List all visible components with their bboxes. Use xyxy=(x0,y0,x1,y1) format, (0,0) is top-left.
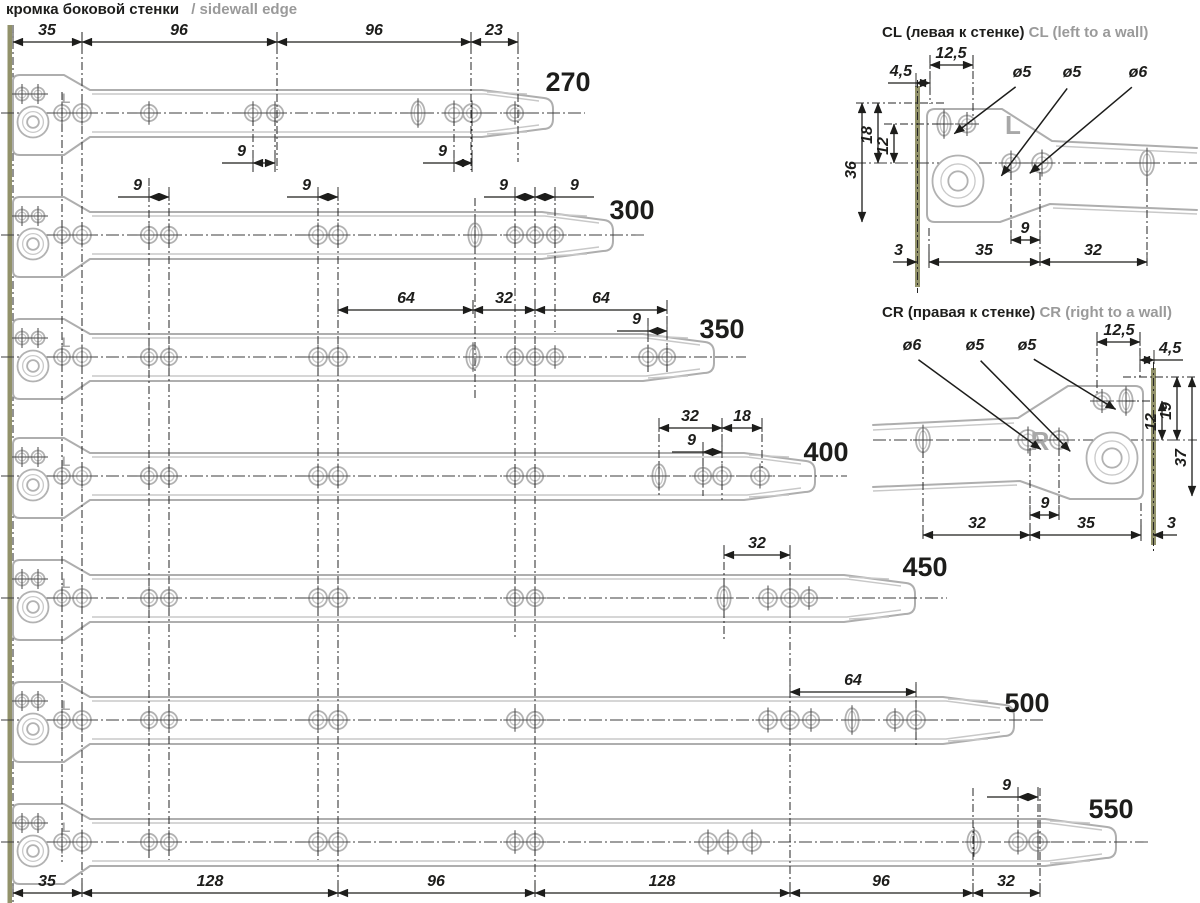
dim-label: 32 xyxy=(495,290,513,307)
screw-hole xyxy=(28,84,48,104)
dimension: 96 xyxy=(277,22,471,46)
slot-hole xyxy=(1137,148,1157,179)
rail-550: L5509 xyxy=(1,777,1148,884)
rail-length-label: 350 xyxy=(699,314,744,344)
dim-label: 9 xyxy=(1002,777,1011,794)
dimension: 32 xyxy=(923,515,1030,539)
dimension: 9 xyxy=(118,177,169,201)
dimension: 4,5 xyxy=(1140,340,1183,364)
dim-label: 35 xyxy=(38,873,57,890)
screw-hole xyxy=(28,328,48,348)
dimension: 9 xyxy=(423,143,472,167)
dimension: 9 xyxy=(1030,495,1059,519)
left-hand-mark: L xyxy=(62,453,71,469)
dim-label: 96 xyxy=(872,873,890,890)
screw-hole xyxy=(28,813,48,833)
dim-label: 96 xyxy=(365,22,383,39)
top-dims: 35969623 xyxy=(13,22,518,46)
dim-label: 23 xyxy=(484,22,503,39)
dimension: 32 xyxy=(659,408,722,432)
hand-mark-cl: L xyxy=(1005,110,1021,140)
dimension: 32 xyxy=(473,290,535,314)
dim-label: 9 xyxy=(632,311,641,328)
dimension: 12,5 xyxy=(1097,322,1140,346)
roller-wheel xyxy=(18,836,49,867)
rail-inner-edge xyxy=(92,247,599,254)
diameter-label: ø5 xyxy=(1063,64,1083,81)
dim-label: 3 xyxy=(1167,515,1176,532)
roller-wheel xyxy=(18,470,49,501)
dimension: 9 xyxy=(1011,220,1040,244)
rail-length-label: 450 xyxy=(902,552,947,582)
bottom-dims: 35128961289632 xyxy=(13,873,1040,897)
detail-cl: CL (левая к стенке) CL (left to a wall)L… xyxy=(843,24,1197,293)
dim-label: 36 xyxy=(843,161,860,179)
rail-350: L3506432649 xyxy=(1,290,746,399)
dim-label: 32 xyxy=(968,515,986,532)
rail-inner-edge xyxy=(92,369,700,376)
rail-body-outline xyxy=(13,319,714,399)
rail-length-label: 400 xyxy=(803,437,848,467)
diameter-label: ø5 xyxy=(966,337,986,354)
dimension: 9 xyxy=(222,143,275,167)
dim-label: 96 xyxy=(427,873,445,890)
dim-label: 32 xyxy=(997,873,1015,890)
dim-label: 9 xyxy=(499,177,508,194)
drawer-slide-drawing: кромка боковой стенки / sidewall edge L2… xyxy=(0,0,1200,903)
dim-label: 96 xyxy=(170,22,188,39)
dim-label: 9 xyxy=(438,143,447,160)
diameter-label: ø6 xyxy=(903,337,922,354)
rail-inner-edge xyxy=(92,338,700,345)
roller-wheel xyxy=(933,156,984,207)
screw-hole xyxy=(503,708,526,731)
dim-label: 18 xyxy=(859,126,876,144)
dimension: 128 xyxy=(535,873,790,897)
dimension: 9 xyxy=(672,432,722,456)
dimension: 18 xyxy=(722,408,762,432)
dimension: 64 xyxy=(790,672,916,696)
dimension: 9 xyxy=(987,777,1038,801)
dim-label: 64 xyxy=(592,290,610,307)
diameter-label: ø5 xyxy=(1018,337,1038,354)
screw-hole xyxy=(28,447,48,467)
roller-wheel xyxy=(1087,433,1138,484)
screw-hole xyxy=(543,345,566,368)
screw-hole xyxy=(797,586,820,609)
dimension: 4,5 xyxy=(888,63,930,87)
rail-length-label: 500 xyxy=(1004,688,1049,718)
dimension: 23 xyxy=(471,22,518,46)
rail-300: 3009999 xyxy=(1,177,655,277)
hand-mark-cr: R xyxy=(1031,426,1050,456)
dimension: 32 xyxy=(1040,242,1147,266)
dim-label: 128 xyxy=(649,873,676,890)
dim-label: 9 xyxy=(1021,220,1030,237)
dim-label: 3 xyxy=(894,242,903,259)
dim-label: 9 xyxy=(1041,495,1050,512)
dimension: 9 xyxy=(535,177,594,201)
dim-label: 32 xyxy=(1084,242,1102,259)
dimension: 32 xyxy=(973,873,1040,897)
rail-inner-edge xyxy=(92,610,901,617)
screw-hole xyxy=(756,586,781,611)
dimension: 9 xyxy=(484,177,535,201)
screw-hole xyxy=(28,206,48,226)
rail-inner-edge xyxy=(92,94,539,101)
dim-label: 35 xyxy=(1077,515,1096,532)
diameter-leader xyxy=(1030,87,1132,173)
roller-wheel xyxy=(18,592,49,623)
rail-inner-edge xyxy=(92,457,801,464)
left-hand-mark: L xyxy=(62,819,71,835)
dim-label: 19 xyxy=(1158,402,1175,420)
screw-hole xyxy=(28,569,48,589)
rail-inner-edge xyxy=(92,701,1000,708)
rail-500: L50064 xyxy=(1,672,1050,762)
rail-450: L45032 xyxy=(1,535,948,640)
dimension: 32 xyxy=(724,535,790,559)
roller-wheel xyxy=(18,351,49,382)
roller-wheel xyxy=(18,107,49,138)
screw-hole xyxy=(883,708,906,731)
technical-drawing-canvas: L270993009999L3506432649L40032189L45032L… xyxy=(0,0,1200,903)
dimension: 35 xyxy=(929,242,1040,266)
screw-hole xyxy=(28,691,48,711)
sidewall-edge-bar xyxy=(8,25,13,903)
detail-title-cl: CL (левая к стенке) CL (left to a wall) xyxy=(882,24,1148,41)
dimension: 19 xyxy=(1158,377,1177,440)
rail-length-label: 270 xyxy=(545,67,590,97)
diameter-leader xyxy=(1034,359,1116,409)
dim-label: 9 xyxy=(687,432,696,449)
rail-inner-edge xyxy=(92,732,1000,739)
dim-label: 18 xyxy=(733,408,751,425)
dimension: 96 xyxy=(790,873,973,897)
rail-length-label: 300 xyxy=(609,195,654,225)
dim-label: 35 xyxy=(38,22,57,39)
screw-hole xyxy=(799,708,822,731)
rail-inner-edge xyxy=(92,854,1102,861)
screw-hole xyxy=(137,101,160,124)
dimension: 96 xyxy=(82,22,277,46)
rail-inner-edge xyxy=(92,579,901,586)
rail-body-outline xyxy=(13,804,1116,884)
slot-hole xyxy=(463,342,482,371)
dim-label: 64 xyxy=(397,290,415,307)
slot-hole xyxy=(964,827,983,856)
dim-label: 12 xyxy=(875,137,892,155)
dim-label: 32 xyxy=(681,408,699,425)
dimension: 36 xyxy=(843,103,862,222)
diameter-label: ø5 xyxy=(1013,64,1033,81)
dim-label: 12,5 xyxy=(935,45,967,62)
dimension: 9 xyxy=(617,311,667,335)
left-hand-mark: L xyxy=(62,575,71,591)
detail-cr: CR (правая к стенке) CR (right to a wall… xyxy=(873,304,1197,551)
screw-hole xyxy=(740,830,765,855)
slot-hole xyxy=(408,98,427,127)
left-hand-mark: L xyxy=(62,697,71,713)
dimension: 37 xyxy=(1173,377,1192,496)
dimension: 128 xyxy=(82,873,338,897)
dim-label: 4,5 xyxy=(889,63,913,80)
left-hand-mark: L xyxy=(62,90,71,106)
roller-wheel xyxy=(18,229,49,260)
rail-inner-edge xyxy=(92,488,801,495)
dim-label: 37 xyxy=(1173,448,1190,467)
rail-inner-edge xyxy=(92,216,599,223)
left-hand-mark: L xyxy=(62,334,71,350)
screw-hole xyxy=(503,101,526,124)
dimension: 96 xyxy=(338,873,535,897)
dim-label: 35 xyxy=(975,242,994,259)
diameter-leader xyxy=(918,360,1040,450)
dim-label: 32 xyxy=(748,535,766,552)
screw-hole xyxy=(756,708,781,733)
dim-label: 4,5 xyxy=(1158,340,1182,357)
dimension: 9 xyxy=(287,177,338,201)
rail-length-label: 550 xyxy=(1088,794,1133,824)
dim-label: 9 xyxy=(570,177,579,194)
screw-hole xyxy=(716,830,741,855)
roller-wheel xyxy=(18,714,49,745)
dim-label: 12,5 xyxy=(1103,322,1135,339)
construction-lines xyxy=(62,46,1040,893)
rail-270: L27099 xyxy=(1,67,591,167)
slot-hole xyxy=(842,705,861,734)
screw-hole xyxy=(748,464,773,489)
dim-label: 9 xyxy=(133,177,142,194)
dim-label: 128 xyxy=(197,873,224,890)
dimension: 35 xyxy=(1030,515,1141,539)
rail-inner-edge xyxy=(92,823,1102,830)
rail-400: L40032189 xyxy=(1,408,849,518)
dimension: 64 xyxy=(338,290,473,314)
detail-title-cr: CR (правая к стенке) CR (right to a wall… xyxy=(882,304,1172,321)
dim-label: 9 xyxy=(237,143,246,160)
dim-label: 9 xyxy=(302,177,311,194)
dimension: 35 xyxy=(13,22,82,46)
dimension: 12,5 xyxy=(930,45,973,69)
screw-hole xyxy=(503,830,526,853)
dim-label: 64 xyxy=(844,672,862,689)
diameter-label: ø6 xyxy=(1129,64,1148,81)
